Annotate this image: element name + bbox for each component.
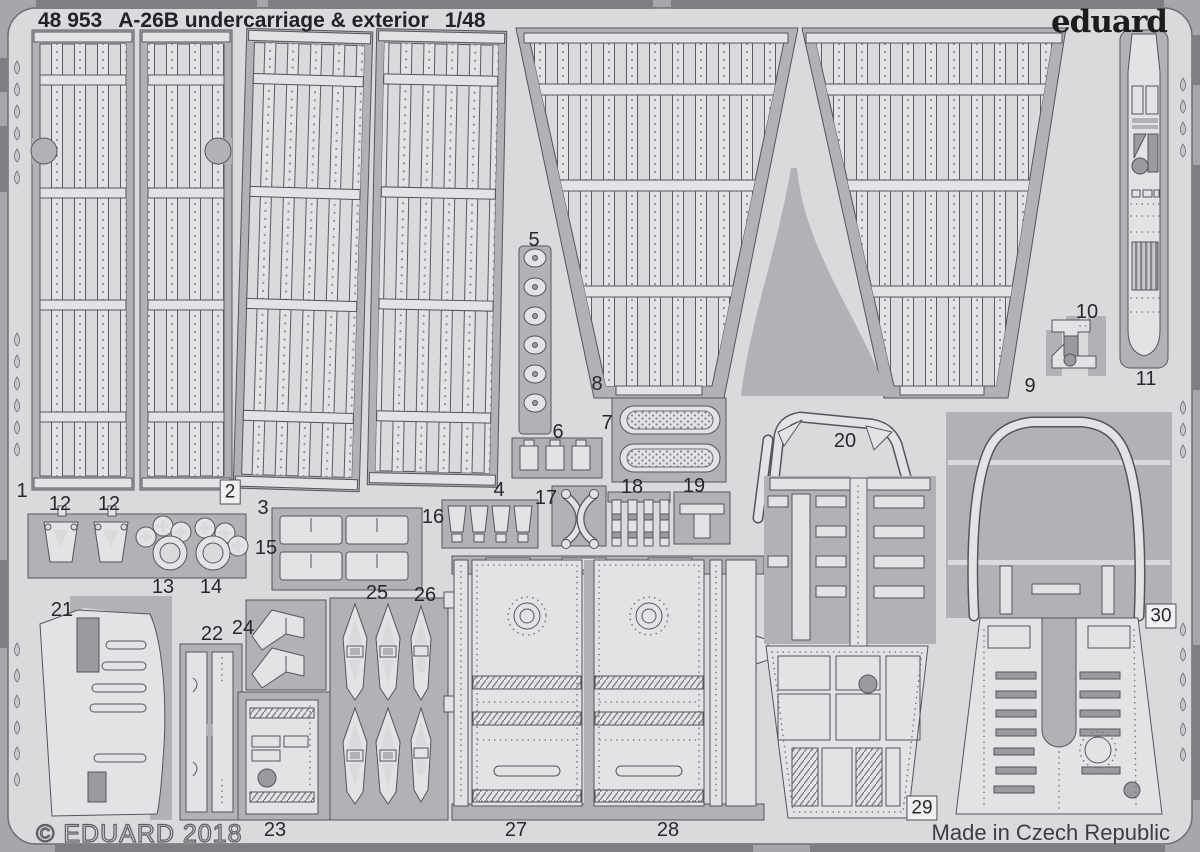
sheet-title: 48 953A-26B undercarriage & exterior1/48 [38, 9, 502, 33]
part-12-13-14-block [28, 506, 248, 578]
part-label-20: 20 [834, 431, 856, 451]
part-label-12: 12 [49, 494, 71, 514]
made-in-text: Made in Czech Republic [932, 820, 1170, 846]
fret-artwork [0, 0, 1200, 852]
part-30-door [956, 618, 1162, 814]
part-16-keystones [442, 500, 538, 548]
part-21-gear-door [40, 596, 172, 820]
part-29-wheel-well-group [764, 476, 936, 818]
part-25-26-linkages [330, 598, 448, 820]
part-label-1: 1 [16, 481, 27, 501]
part-label-24: 24 [232, 618, 254, 638]
part-label-16: 16 [422, 507, 444, 527]
part-11-fuselage-strip [1120, 30, 1168, 368]
part-5-fairlead-chain [519, 246, 551, 434]
part-label-29: 29 [906, 796, 937, 821]
part-19-t-bracket [674, 492, 730, 544]
part-10-bracket [1046, 316, 1106, 376]
part-label-26: 26 [414, 585, 436, 605]
part-label-19: 19 [683, 476, 705, 496]
eduard-logo: eduard [1051, 4, 1167, 40]
part-label-2: 2 [220, 480, 241, 505]
part-7-mesh-grilles [612, 398, 726, 482]
part-label-12: 12 [98, 494, 120, 514]
part-label-14: 14 [200, 577, 222, 597]
part-label-27: 27 [505, 820, 527, 840]
part-label-7: 7 [601, 413, 612, 433]
part-2-ribbed-panel [233, 28, 373, 492]
part-label-8: 8 [591, 374, 602, 394]
part-label-6: 6 [552, 422, 563, 442]
part-label-18: 18 [621, 477, 643, 497]
part-label-23: 23 [264, 820, 286, 840]
part-17-crossed-links [552, 486, 606, 549]
part-1-ribbed-panel-b [140, 30, 232, 490]
part-label-28: 28 [657, 820, 679, 840]
part-label-17: 17 [535, 488, 557, 508]
part-label-5: 5 [528, 230, 539, 250]
part-27-door [472, 560, 582, 806]
part-29-panel [766, 646, 928, 818]
copyright-text: © EDUARD 2018 [36, 820, 243, 849]
part-4-ribbed-panel [367, 29, 507, 488]
part-label-3: 3 [257, 498, 268, 518]
part-30-nose-door-group [946, 412, 1172, 814]
part-label-25: 25 [366, 583, 388, 603]
part-23-panel [238, 692, 334, 820]
part-28-door [594, 560, 704, 806]
part-27-28-bay-doors [444, 556, 768, 820]
part-1-ribbed-panel-a [31, 30, 134, 490]
part-label-21: 21 [51, 600, 73, 620]
part-label-13: 13 [152, 577, 174, 597]
part-22-strips [180, 644, 242, 820]
part-label-4: 4 [493, 480, 504, 500]
part-6-bracket-comb [512, 438, 602, 478]
part-3-15-frames [272, 508, 422, 590]
photoetch-fret-sheet: 48 953A-26B undercarriage & exterior1/48… [0, 0, 1200, 852]
part-label-30: 30 [1145, 604, 1176, 629]
sheet-scale: 1/48 [445, 9, 486, 32]
part-24-chevrons [246, 600, 326, 690]
part-label-9: 9 [1024, 376, 1035, 396]
part-label-22: 22 [201, 624, 223, 644]
sheet-name: A-26B undercarriage & exterior [118, 9, 428, 32]
part-label-10: 10 [1076, 302, 1098, 322]
catalog-number: 48 953 [38, 9, 102, 32]
part-label-11: 11 [1136, 369, 1157, 389]
part-label-15: 15 [255, 538, 277, 558]
